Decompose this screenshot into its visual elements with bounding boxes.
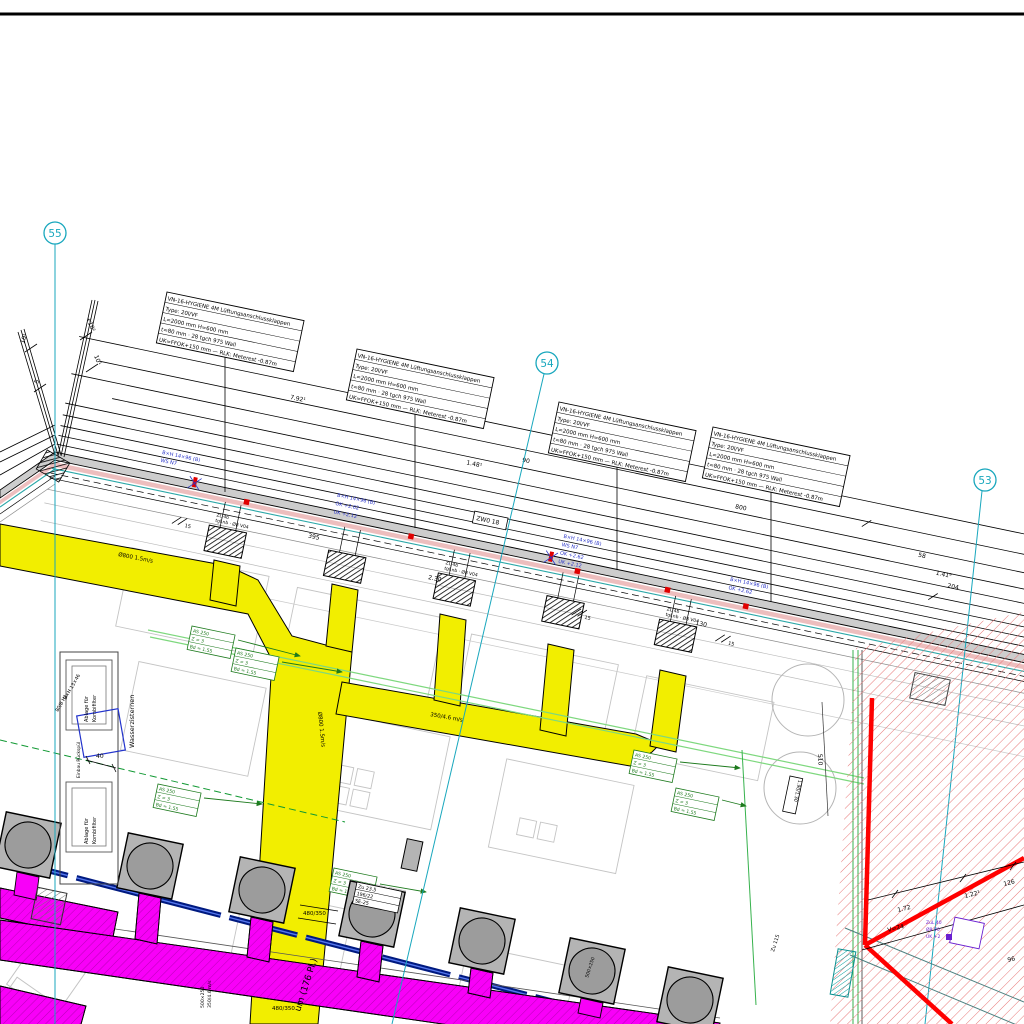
tank-type-label: 80/8 H1 xyxy=(55,694,70,713)
red-zone: 1.72 1.22¹ 96 V=24 126 ZuL 40 Ø8 V0 UK +… xyxy=(830,612,1024,1024)
duct-callout-box-3: VN-16-HYGIENE 4M Lüftungsanschlussklappe… xyxy=(548,402,696,482)
dim-792: 7.92¹ xyxy=(289,394,306,404)
dim-510: 510 xyxy=(816,754,824,766)
dim-395: 395 xyxy=(307,533,320,542)
green-callout-1: AS 250 Z = 3 Bd = 1.55 xyxy=(187,626,235,658)
floor-plan-canvas: 10¹ 5 +10² 10¹ VN-16-HYGIENE 4M Lüftungs… xyxy=(0,0,1024,1024)
dim-58: 58 xyxy=(917,552,926,560)
small-gray-unit xyxy=(401,839,423,872)
kombi-label-1: Kombifilter xyxy=(92,694,98,722)
purple-l2: Ø8 V0 xyxy=(926,926,940,933)
ablage-label-1: Ablage für xyxy=(84,695,90,722)
water-cistern-area: Ablage für Kombifilter Ablage für Kombif… xyxy=(55,652,136,884)
dim-15b: 15 xyxy=(584,615,591,622)
purple-l3: UK +2 xyxy=(926,934,940,940)
facade-left-branch xyxy=(0,425,70,522)
dim-800: 800 xyxy=(734,503,747,512)
gray-hatched-unit xyxy=(31,887,67,924)
zu115-label: Zu 115 xyxy=(770,934,781,953)
dimension-bundles xyxy=(18,300,98,457)
duct-350-label-1: 350/4.6 m/s xyxy=(207,980,213,1008)
dim-10-2: +10² xyxy=(84,316,96,333)
duct-size-label-4: 480/350 xyxy=(303,911,326,917)
green-callout-3: AS 250 Z = 3 Bd = 1.55 xyxy=(153,784,201,816)
wasserzisternen-label: Wasserzisternen xyxy=(128,695,136,748)
duct-500-label-1: 500×250 xyxy=(200,987,206,1008)
cad-drawing-viewport: 10¹ 5 +10² 10¹ VN-16-HYGIENE 4M Lüftungs… xyxy=(0,0,1024,1024)
purple-l1: ZuL 40 xyxy=(926,920,942,926)
duct-size-label-5: 480/350 xyxy=(272,1006,295,1012)
kombi-label-2: Kombifilter xyxy=(92,816,98,844)
green-callout-4: AS 250 Z = 3 Bd = 1.55 xyxy=(629,750,677,782)
blue-l2: WS N7 xyxy=(160,458,178,467)
grid-bubble-53-label: 53 xyxy=(978,475,991,487)
dim-15a: 15 xyxy=(184,523,191,530)
dim-230: 2.30 xyxy=(428,574,443,584)
grid-bubble-55: 55 xyxy=(44,222,66,244)
size-190-tag: 1.90/1.30 xyxy=(783,776,803,814)
grid-bubble-53: 53 xyxy=(974,469,996,491)
grid-bubble-54-label: 54 xyxy=(540,358,554,370)
zwo-tag: ZW0 18 xyxy=(472,511,508,530)
dim-1419: 1.41⁹ xyxy=(935,570,952,580)
plan-circle-1 xyxy=(772,664,844,736)
ablage-label-2: Ablage für xyxy=(84,817,90,844)
dim-148: 1.48¹ xyxy=(466,459,483,469)
dim-10-1b: 10¹ xyxy=(92,354,102,366)
duct-callout-box-2: VN-16-HYGIENE 4M Lüftungsanschlussklappe… xyxy=(346,349,494,429)
grid-bubble-55-label: 55 xyxy=(48,228,61,240)
duct-callout-box-4: VN-16-HYGIENE 4M Lüftungsanschlussklappe… xyxy=(702,427,850,507)
grid-bubble-54: 54 xyxy=(536,352,558,374)
einbau-label: Einbau Rückspül xyxy=(76,742,82,778)
dim-15c: 15 xyxy=(727,641,734,648)
dim-204: 204 xyxy=(947,582,960,591)
dim-5: 5 xyxy=(33,379,41,385)
duct-callout-box-1: VN-16-HYGIENE 4M Lüftungsanschlussklappe… xyxy=(156,292,304,372)
green-callout-5: AS 250 Z = 3 Bd = 1.55 xyxy=(671,788,719,820)
dim-40: 40 xyxy=(96,753,104,760)
dim-510-group: 510 xyxy=(816,702,828,816)
